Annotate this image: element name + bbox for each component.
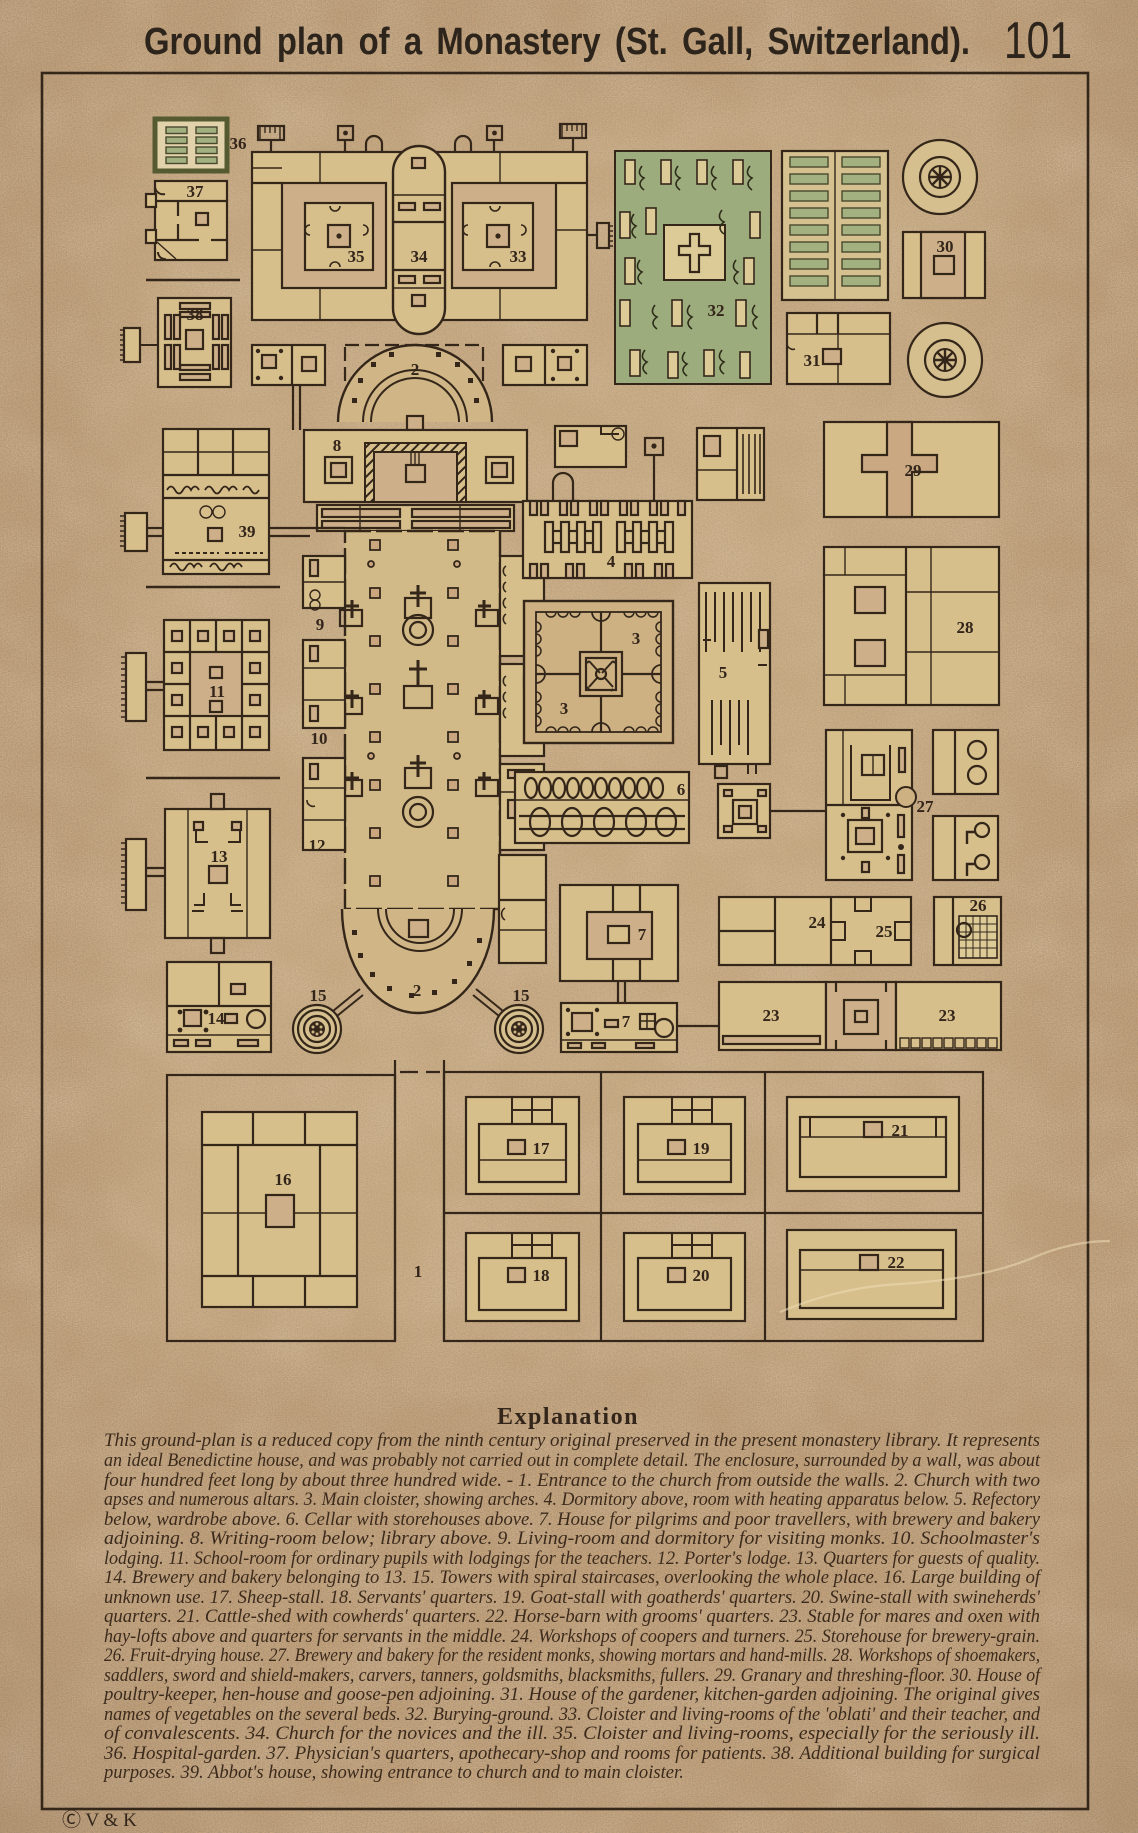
svg-text:10: 10 — [311, 729, 328, 748]
svg-text:20: 20 — [693, 1266, 710, 1285]
svg-text:37: 37 — [187, 182, 205, 201]
svg-text:16: 16 — [275, 1170, 292, 1189]
svg-text:2: 2 — [411, 360, 420, 379]
svg-text:31: 31 — [804, 351, 821, 370]
svg-text:6: 6 — [677, 780, 686, 799]
svg-text:25: 25 — [876, 922, 893, 941]
svg-text:28: 28 — [957, 618, 974, 637]
svg-text:17: 17 — [533, 1139, 551, 1158]
svg-text:Ⓒ V & K: Ⓒ V & K — [62, 1809, 137, 1831]
svg-text:8: 8 — [333, 436, 342, 455]
svg-text:24: 24 — [809, 913, 827, 932]
svg-text:1: 1 — [414, 1262, 423, 1281]
svg-text:an ideal Benedictine house, an: an ideal Benedictine house, and was prob… — [104, 1450, 1041, 1471]
svg-text:Explanation: Explanation — [497, 1404, 639, 1430]
svg-text:14. Brewery and bakery belongi: 14. Brewery and bakery belonging to 13. … — [104, 1567, 1043, 1588]
svg-text:18: 18 — [533, 1266, 550, 1285]
svg-text:35: 35 — [348, 247, 365, 266]
svg-text:26: 26 — [970, 896, 987, 915]
svg-text:hay-lofts above and quarters f: hay-lofts above and quarters for servant… — [104, 1626, 1040, 1647]
svg-text:19: 19 — [693, 1139, 710, 1158]
svg-text:purposes. 39. Abbot's house,: purposes. 39. Abbot's house, showing ent… — [102, 1762, 684, 1783]
svg-text:26. Fruit-drying house. 27. B: 26. Fruit-drying house. 27. Brewery and … — [104, 1645, 1040, 1666]
svg-text:lodging. 11. School-room for o: lodging. 11. School-room for ordinary pu… — [104, 1548, 1040, 1569]
svg-text:11: 11 — [209, 682, 225, 701]
svg-text:names of vegetables on the sev: names of vegetables on the several beds.… — [104, 1704, 1041, 1725]
svg-text:39: 39 — [239, 522, 256, 541]
svg-text:12: 12 — [309, 836, 326, 855]
svg-text:adjoining. 8. Writing-room be: adjoining. 8. Writing-room below; librar… — [104, 1528, 1040, 1549]
svg-text:7: 7 — [638, 925, 647, 944]
svg-text:30: 30 — [937, 237, 954, 256]
svg-text:3: 3 — [560, 699, 569, 718]
svg-text:29: 29 — [905, 461, 922, 480]
svg-text:below, wardrobe above. 6. Cel: below, wardrobe above. 6. Cellar with st… — [104, 1509, 1041, 1530]
svg-text:15: 15 — [310, 986, 327, 1005]
svg-text:saddlers, sword and shield-mak: saddlers, sword and shield-makers, carve… — [104, 1665, 1043, 1686]
svg-text:38: 38 — [187, 305, 204, 324]
svg-text:32: 32 — [708, 301, 725, 320]
svg-text:13: 13 — [211, 847, 228, 866]
svg-text:27: 27 — [917, 797, 935, 816]
svg-text:22: 22 — [888, 1253, 905, 1272]
svg-text:apses and numerous altars. 3.: apses and numerous altars. 3. Main clois… — [104, 1489, 1041, 1510]
svg-text:36: 36 — [230, 134, 247, 153]
svg-text:quarters. 21. Cattle-shed wit: quarters. 21. Cattle-shed with cowherds'… — [104, 1606, 1040, 1627]
svg-text:This ground-plan is a reduced: This ground-plan is a reduced copy from … — [104, 1430, 1040, 1451]
svg-text:2: 2 — [413, 981, 422, 1000]
svg-text:36. Hospital-garden. 37. Phys: 36. Hospital-garden. 37. Physician's qua… — [103, 1743, 1040, 1764]
svg-text:101: 101 — [1004, 12, 1072, 70]
svg-text:7: 7 — [622, 1012, 631, 1031]
svg-text:unknown use. 17. Sheep-stall.: unknown use. 17. Sheep-stall. 18. Servan… — [104, 1587, 1041, 1608]
svg-text:21: 21 — [892, 1121, 909, 1140]
svg-text:23: 23 — [939, 1006, 956, 1025]
svg-text:four hundred feet long by abou: four hundred feet long by about three hu… — [104, 1470, 1040, 1491]
svg-text:34: 34 — [411, 247, 429, 266]
svg-text:3: 3 — [632, 629, 641, 648]
svg-text:poultry-keeper, hen-house and: poultry-keeper, hen-house and goose-pen … — [102, 1684, 1040, 1705]
svg-text:33: 33 — [510, 247, 527, 266]
svg-text:4: 4 — [607, 552, 616, 571]
svg-text:23: 23 — [763, 1006, 780, 1025]
svg-text:of convalescents. 34. Church: of convalescents. 34. Church for the nov… — [104, 1723, 1040, 1744]
svg-text:14: 14 — [208, 1009, 226, 1028]
svg-text:15: 15 — [513, 986, 530, 1005]
svg-text:5: 5 — [719, 663, 728, 682]
svg-text:9: 9 — [316, 615, 325, 634]
svg-text:Ground plan of a Monastery (St: Ground plan of a Monastery (St. Gall, Sw… — [144, 21, 970, 63]
